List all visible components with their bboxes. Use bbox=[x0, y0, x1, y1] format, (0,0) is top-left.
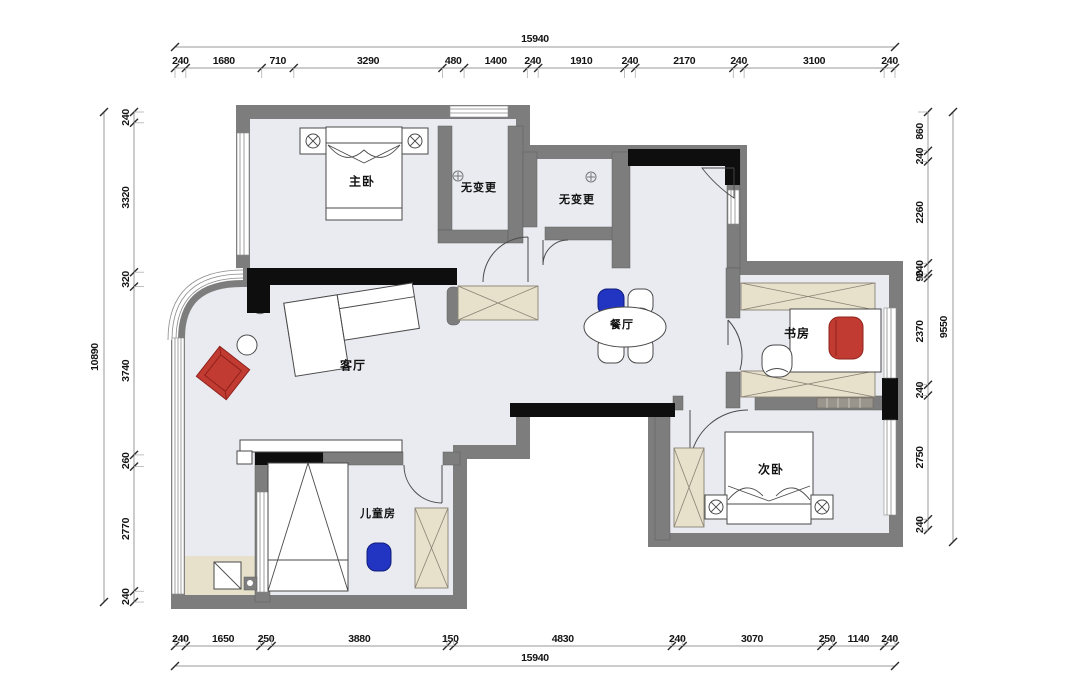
room-label-dining-room: 餐厅 bbox=[610, 316, 634, 332]
svg-text:240: 240 bbox=[172, 633, 189, 645]
side-table bbox=[237, 335, 257, 355]
svg-text:3320: 3320 bbox=[120, 186, 132, 209]
svg-text:4830: 4830 bbox=[552, 633, 575, 645]
svg-text:15940: 15940 bbox=[521, 652, 549, 664]
svg-text:2370: 2370 bbox=[914, 320, 926, 343]
study-chair-red bbox=[829, 317, 863, 359]
svg-text:3100: 3100 bbox=[803, 55, 826, 67]
svg-text:240: 240 bbox=[730, 55, 747, 67]
svg-text:860: 860 bbox=[914, 123, 926, 140]
svg-text:240: 240 bbox=[669, 633, 686, 645]
svg-text:2770: 2770 bbox=[120, 517, 132, 540]
svg-text:240: 240 bbox=[172, 55, 189, 67]
svg-text:240: 240 bbox=[622, 55, 639, 67]
room-label-no-change-1: 无变更 bbox=[461, 179, 497, 195]
svg-text:2170: 2170 bbox=[673, 55, 696, 67]
room-label-study: 书房 bbox=[784, 325, 810, 342]
svg-text:2750: 2750 bbox=[914, 446, 926, 469]
svg-text:240: 240 bbox=[524, 55, 541, 67]
svg-text:10890: 10890 bbox=[89, 343, 101, 371]
svg-text:90: 90 bbox=[914, 270, 926, 282]
kids-chair-blue bbox=[367, 543, 391, 571]
svg-text:240: 240 bbox=[881, 633, 898, 645]
floor-plan-canvas: 2401680710329048014002401910240217024031… bbox=[0, 0, 1080, 698]
kids-bed bbox=[268, 463, 348, 591]
svg-text:1680: 1680 bbox=[213, 55, 236, 67]
svg-text:2260: 2260 bbox=[914, 201, 926, 224]
svg-text:1910: 1910 bbox=[570, 55, 593, 67]
svg-text:9550: 9550 bbox=[938, 315, 950, 338]
svg-text:320: 320 bbox=[120, 271, 132, 288]
svg-text:250: 250 bbox=[819, 633, 836, 645]
svg-text:15940: 15940 bbox=[521, 33, 549, 45]
svg-text:250: 250 bbox=[258, 633, 275, 645]
tv-cabinet bbox=[240, 440, 402, 452]
room-label-no-change-2: 无变更 bbox=[559, 191, 595, 207]
svg-text:3070: 3070 bbox=[741, 633, 764, 645]
svg-text:1650: 1650 bbox=[212, 633, 235, 645]
room-label-kids-room: 儿童房 bbox=[360, 505, 396, 521]
room-label-living-room: 客厅 bbox=[340, 357, 366, 374]
svg-text:480: 480 bbox=[445, 55, 462, 67]
svg-text:1140: 1140 bbox=[848, 633, 870, 645]
svg-text:260: 260 bbox=[120, 452, 132, 469]
svg-text:240: 240 bbox=[120, 588, 132, 605]
svg-text:1400: 1400 bbox=[485, 55, 508, 67]
room-label-master-bedroom: 主卧 bbox=[349, 173, 375, 190]
room-label-second-bedroom: 次卧 bbox=[758, 461, 784, 478]
svg-text:710: 710 bbox=[269, 55, 286, 67]
entry-cabinet bbox=[458, 286, 538, 320]
svg-text:240: 240 bbox=[120, 109, 132, 126]
svg-text:3290: 3290 bbox=[357, 55, 380, 67]
light-symbol bbox=[586, 172, 596, 182]
svg-text:240: 240 bbox=[881, 55, 898, 67]
floor-plan-page: 2401680710329048014002401910240217024031… bbox=[0, 0, 1080, 698]
svg-text:3880: 3880 bbox=[348, 633, 371, 645]
svg-text:3740: 3740 bbox=[120, 359, 132, 382]
